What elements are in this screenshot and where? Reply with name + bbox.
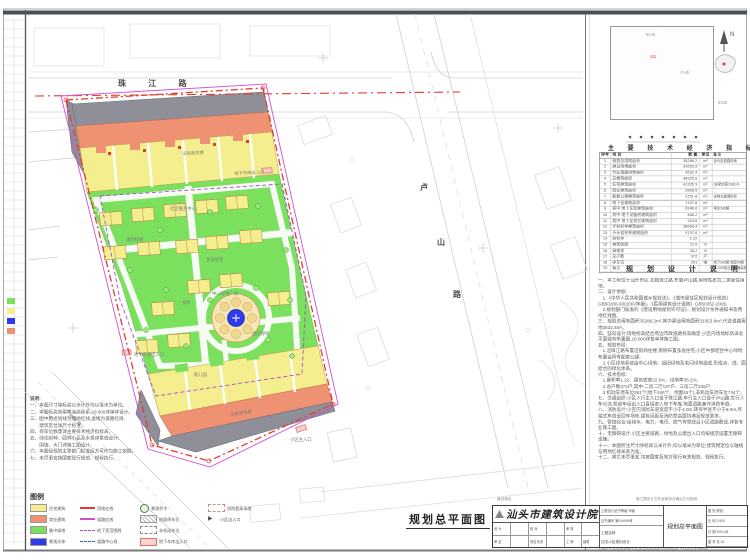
plan-label: 中心绿地广场 [212,290,238,296]
legend-item: 景观乔木 [140,504,201,512]
legend-label: 集中绿地 [49,527,65,533]
indicator-cell: 绿地率 [610,248,670,253]
indicator-cell: 规划总用地面积 [610,159,670,164]
indicator-cell: 16 [600,248,611,253]
villa-building [240,229,263,244]
indicator-cell [712,176,746,181]
legend-rect-dash-icon [140,526,157,534]
location-map [610,26,714,120]
legend-label: 用地红线 [97,505,113,511]
road-label-char: 路 [453,289,461,300]
plan-label: 会所 [182,299,191,305]
villa-building [176,239,199,254]
villa-building [196,199,219,214]
legend-label: 景观乔木 [151,505,167,511]
indicator-cell: m² [699,207,712,212]
staff-signature-grid: 设 计校 对审 核审 定项目负责工 种建筑 [493,523,599,547]
plan-label: 社区服务中心 [170,205,196,211]
villa-building [100,211,123,226]
design-note-line: 十、无障碍设计:小区主要道路、绿地及公建出入口均按规范设置无障碍设施。 [598,432,746,444]
legend-item: 景观水体 [30,538,73,546]
legend-line-icon [80,518,95,520]
indicator-cell: 13 [600,231,611,236]
drawing-meta-cells: 图 别 规划比 例 1:500日 期 2004.08图 号 总-01 [706,506,747,547]
indicator-cell: % [699,248,712,253]
indicator-cell [712,170,746,175]
indicator-cell [712,231,746,236]
staff-label-cell: 设 计 [493,523,510,535]
indicator-cell: m² [699,194,712,199]
indicator-cell: 配套公建建筑面积 [610,194,670,199]
indicator-cell [712,225,746,230]
legend-item: 用地红线 [80,504,133,512]
staff-value-cell [510,536,528,548]
legend-label: 道路红线 [97,516,113,522]
legend-label: 消防登高场地 [227,505,251,511]
indicator-cell [712,165,746,170]
road-label-zhujiang: 珠 江 路 [118,78,196,89]
plan-note-line: 六、本图经规划主管部门批准后方可作为施工依据。 [30,449,141,456]
legend: 图例 住宅建筑商业建筑集中绿地景观水体用地红线道路红线地下室范围线道路中心线景观… [30,492,263,546]
indicator-cell: 19 [600,266,611,271]
design-note-line: 一、本工程位于汕头市区,北临珠江路,东临卢山路,用地性质为二类居住用地。 [598,278,746,290]
villa-building [226,195,249,210]
indicator-cell: 17 [600,254,611,259]
staff-label-cell: 审 定 [493,536,510,548]
indicator-cell: 不计容积率建筑面积 [610,231,670,236]
legend-label: 小区出入口 [220,516,240,522]
plan-label: 幼儿园 [194,371,207,377]
legend-item: 地下车库出入口 [140,538,201,546]
indicator-cell: 12 [600,225,611,230]
institute-name: 汕头市建筑设计院 [506,507,598,522]
cert-line2: 证书编号 第044006号 [601,518,633,523]
legend-label: 非机动车位 [159,527,179,533]
staff-label-cell: 审 核 [564,523,582,535]
indicator-cell: 15 [600,242,611,247]
indicator-cell [712,254,746,259]
indicator-cell: m² [699,231,712,236]
indicator-cell: 其中 地下车库建筑面积 [610,207,670,212]
binding-strip [4,18,25,545]
indicator-row: 7配套公建建筑面积2251.8m²含物业管理用房 [600,194,746,200]
indicator-cell: 建设用地面积 [610,165,670,170]
legend-item: 地下室范围线 [80,526,133,534]
indicator-cell: 35286.2 [671,159,699,164]
indicator-cell: m² [699,182,712,187]
project-value: 住宅小区规划设计 [601,538,638,543]
legend-swatch-icon [30,526,47,534]
legend-swatch-icon [30,515,47,523]
indicator-cell: 住宅建筑面积 [610,182,670,187]
indicator-cell: m² [699,176,712,181]
staff-label-cell: 项目负责 [528,536,546,548]
indicator-cell: m² [699,165,712,170]
indicator-cell: 324.8 [671,219,699,224]
villa-building [220,273,243,288]
indicator-header-cell: 序号 [600,153,611,158]
meta-cell: 比 例 1:500 [707,516,747,526]
legend-dash-icon [80,530,95,531]
meta-cell: 日 期 2004.08 [707,527,747,537]
plan-note-line: 建筑定位详尺寸标注。 [30,422,141,429]
indicator-cell [712,237,746,242]
road-label-char: 卢 [420,182,428,193]
north-building-block [66,92,279,192]
indicator-cell: 地下室建筑面积 [610,201,670,206]
legend-item: 住宅建筑 [30,504,73,512]
north-arrow-icon: N [720,30,734,52]
plan-label: 组团绿地 [126,236,143,242]
indicator-cell: 2 [600,165,611,170]
road-label-char: 山 [437,237,445,248]
indicator-cell: 5 [600,182,611,187]
indicator-cell [712,213,746,218]
legend-item: 非机动车位 [140,526,201,534]
indicator-cell: 含代征道路用地 [712,159,746,164]
indicator-cell: 含物业管理用房 [712,194,746,199]
cert-line1: 工程设计证书等级 甲级 [601,508,635,513]
legend-label: 地下车库出入口 [159,539,188,545]
indicator-cell: 容积率 [610,237,670,242]
meta-cell: 图 别 规划 [707,506,747,516]
plan-note-line: 二、本图标高采用黄海高程系,±0.000详单体设计。 [30,409,141,416]
indicator-cell: 31653.8 [671,165,699,170]
indicator-cell [712,242,746,247]
indicator-header-cell: 备 注 [712,153,746,158]
minimap-site-label: 本案 [650,54,656,59]
indicator-cell: m² [699,201,712,206]
design-note-line: 九、管线综合:给排水、电力、电讯、燃气等管线沿小区道路敷设,详各专业施工图。 [598,420,746,432]
design-note-line: 十一、本图所注尺寸除标高以米计外,均以毫米为单位;建筑物定位以轴线与用地红线关系… [598,443,746,455]
staff-value-cell [546,536,564,548]
project-label: 工程名称 [601,529,638,534]
legend-rect-hatch-icon [140,515,157,523]
plan-note-line: 三、图中粗点划线为用地红线,虚线为道路红线, [30,416,141,423]
indicator-header-cell: 数 量 [671,153,699,158]
indicator-header-cell: 项 目 [610,153,670,158]
indicator-header-cell: 单位 [699,153,712,158]
villa-building [132,207,155,222]
legend-item: 集中绿地 [30,526,73,534]
title-block: 汕头市建筑设计院 设 计校 对审 核审 定项目负责工 种建筑 工程设计证书等级 … [492,505,748,548]
design-note-line: 八、消防设计:小区内消防车道宽度不小于4.0m,转弯半径不小于9.0m,尽端式车… [598,408,746,420]
design-note-line: 四、竖向设计:场地标高结合周边市政道路标高确定,小区内场地标高详总平面竖向布置图… [598,331,746,343]
plan-notes: 说明: 一、本图尺寸除标高以米计外均以毫米为单位。二、本图标高采用黄海高程系,±… [30,396,141,462]
indicator-cell: 3 [600,170,611,175]
design-note-line: 三、规划总用地面积35286.2m²,其中建设用地面积31653.8m²,代征道… [598,319,746,331]
minimap-caption: 区位图 [718,100,727,105]
indicator-cell: 计容积率建筑面积 [610,225,670,230]
legend-arrow-icon: ▶ [208,515,218,523]
indicator-cell: 14 [600,237,611,242]
legend-line-icon [80,507,95,509]
indicator-cell: 10 [600,213,611,218]
plan-note-line: 围墙、大门详施工图设计。 [30,442,141,449]
design-notes: 一、本工程位于汕头市区,北临珠江路,东临卢山路,用地性质为二类居住用地。二、设计… [598,278,746,471]
indicator-cell: 46325.6 [671,176,699,181]
drawing-title: 规划总平面图 [406,511,490,529]
indicator-cell: 3632.4 [671,170,699,175]
legend-label: 地下室范围线 [97,527,121,533]
legend-label: 商业建筑 [49,516,65,522]
indicator-cell: 6 [600,188,611,193]
drawing-sheet: { "sheet": { "main_title": "规划总平面图", "no… [0,0,750,560]
indicator-cell: 41205.3 [671,182,699,187]
indicator-cell: 代征道路用地面积 [610,170,670,175]
legend-item: 地面停车位 [140,515,201,523]
staff-value-cell [510,523,528,535]
region-outline [716,55,736,73]
design-note-line: 七、交通组织:小区人行主入口设于珠江路,车行主入口设于卢山路;实行人车分流,机动… [598,396,746,408]
design-note-line: 2.小区绿地系统由中心绿地、组团绿地及宅间绿地组成,形成点、线、面结合的绿化体系… [598,361,746,373]
indicator-cell: 其中 地下设备房建筑面积 [610,213,670,218]
indicator-cell: 2251.8 [671,194,699,199]
legend-label: 道路中心线 [97,539,117,545]
meta-cell: 图 号 总-01 [707,537,747,547]
villa-building [152,301,175,316]
legend-item: ▶小区出入口 [208,515,263,523]
indicator-cell: 总户数 [610,254,670,259]
indicator-cell: 商业建筑面积 [610,188,670,193]
indicator-cell [712,188,746,193]
design-note-line: 1.《中华人民共和国城乡规划法》、《城市居住区规划设计规范》GB50180-93… [598,296,746,308]
staff-value-cell [546,523,564,535]
staff-label-cell: 校 对 [528,523,546,535]
indicator-cell: 总建筑面积 [610,176,670,181]
villa-building [104,245,127,260]
indicator-cell: 35.2 [671,248,699,253]
legend-item: 商业建筑 [30,515,73,523]
indicator-cell: 7157.6 [671,201,699,206]
plan-label: 地下车库出入口 [134,351,164,357]
design-note-line: 1.沿珠江路布置沿街商住楼,南侧布置多层住宅,小区中部结合中心绿地布置会所等配套… [598,349,746,361]
villa-building [188,279,211,294]
legend-dash-icon [80,541,95,542]
context-roads [25,14,585,548]
indicator-cell: 18 [600,260,611,265]
indicator-cell: 9737.6 [671,231,699,236]
institute-logo-icon [495,510,504,518]
indicators-title: 主 要 技 术 经 济 指 标 [608,143,750,152]
review-annotation: 施工图设计文件经审查合格后方可使用 [636,496,697,501]
legend-item: 道路中心线 [80,538,133,546]
staff-value-cell: 建筑 [581,536,599,548]
legend-swatch-icon [30,538,47,546]
villa-building [138,241,161,256]
client-annotation: 建设单位: [497,496,512,501]
indicator-cell: m² [699,219,712,224]
minimap-road1-label: 珠江路 [646,32,655,37]
plan-note-line: 七、未尽事宜按国家现行规范、规程执行。 [30,455,141,462]
indicator-cell: 11 [600,219,611,224]
indicator-cell: 4 [600,176,611,181]
legend-swatch-icon [30,504,47,512]
plan-label: 组团绿地 [252,330,269,336]
indicator-cell [712,201,746,206]
indicator-cell: 1.22 [671,237,699,242]
staff-value-cell [581,523,599,535]
villa-building [268,291,291,306]
indicator-cell [699,237,712,242]
indicator-cell: 户 [699,254,712,259]
legend-rect-pink-icon [140,538,157,546]
legend-circle-icon [140,504,149,513]
indicator-cell: m² [699,188,712,193]
scale-bar [626,136,700,142]
indicator-cell: 22.6 [671,242,699,247]
legend-item: 道路红线 [80,515,133,523]
legend-title: 图例 [30,492,263,502]
indicator-cell: m² [699,170,712,175]
design-note-line: 2.规划部门核发的《建设用地规划许可证》、规划设计条件通知书及用地红线图。 [598,308,746,320]
plan-label: 沿街商住楼 [182,149,204,157]
legend-label: 住宅建筑 [49,505,65,511]
design-note-line: 十二、其它未尽事宜,均按国家及地方现行有关规范、规程执行。 [598,455,746,461]
legend-label: 景观水体 [49,539,65,545]
svg-text:N: N [730,32,734,38]
indicator-cell: 建筑密度 [610,242,670,247]
plan-label: 小区主入口 [290,436,312,442]
plan-label: 多层住宅 [206,256,223,262]
villa-building [206,235,229,250]
minimap-road2-label: 卢山路 [680,70,689,75]
indicator-cell: m² [699,159,712,164]
legend-rect-dash-icon [208,504,225,512]
indicator-cell: 停车346辆 [712,207,746,212]
indicator-cell: 372 [671,254,699,259]
indicator-cell: 2868.5 [671,188,699,193]
indicator-cell [712,248,746,253]
indicator-cell: 486.2 [671,213,699,218]
legend-label: 地面停车位 [159,516,179,522]
indicator-cell: 9 [600,207,611,212]
indicator-cell: 6346.6 [671,207,699,212]
indicator-cell: % [699,242,712,247]
indicator-cell: 其中 地下室其它建筑面积 [610,219,670,224]
drawing-name-cell: 规划总平面图 [667,522,703,531]
staff-label-cell: 工 种 [564,536,582,548]
indicator-cell: 8 [600,201,611,206]
indicator-cell [712,219,746,224]
indicator-cell: 38668.4 [671,225,699,230]
indicator-cell: 1 [600,159,611,164]
design-notes-title: 规 划 设 计 说 明 [626,264,744,274]
indicator-cell: m² [699,225,712,230]
plan-note-line: 一、本图尺寸除标高以米计外均以毫米为单位。 [30,403,141,410]
indicators-table: 序号项 目数 量单位备 注1规划总用地面积35286.2m²含代征道路用地2建设… [599,152,747,273]
legend-item: 消防登高场地 [208,504,263,512]
indicator-cell: m² [699,213,712,218]
indicator-cell: (含架空层2080.4) [712,182,746,187]
indicator-cell: 7 [600,194,611,199]
